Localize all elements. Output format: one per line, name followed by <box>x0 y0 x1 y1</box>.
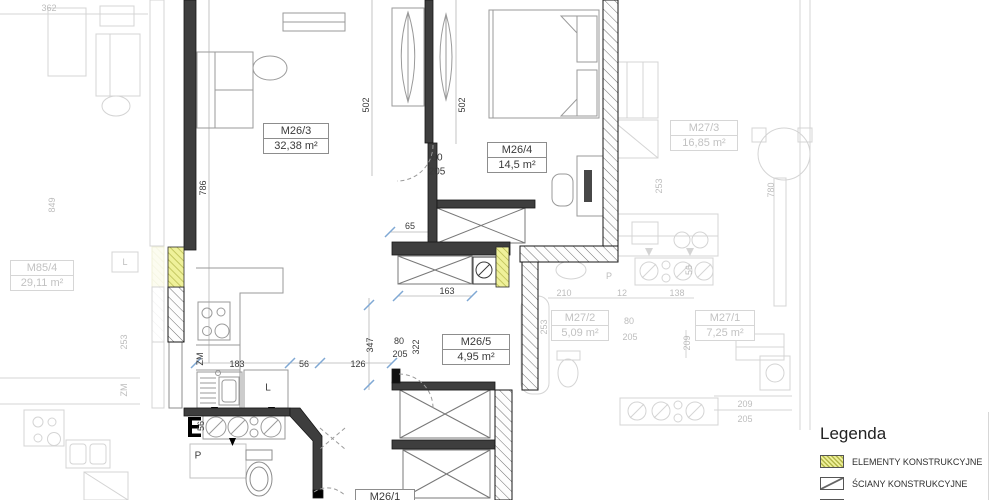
dim-56-right: 56 <box>684 265 694 275</box>
room-name: M26/4 <box>488 143 546 158</box>
dim-door-80: 80 <box>431 153 442 164</box>
wardrobe-right-unit <box>612 62 658 118</box>
legend-item-structural-elements: ELEMENTY KONSTRUKCYJNE <box>820 455 995 468</box>
legend-item-label: ELEMENTY KONSTRUKCYJNE <box>852 457 982 467</box>
dim-205-bottom: 205 <box>737 414 752 424</box>
faded-partition-wall <box>152 342 164 408</box>
table-left-unit <box>102 96 130 116</box>
legend-item-structural-walls: ŚCIANY KONSTRUKCYJNE <box>820 477 995 490</box>
coffee-table <box>253 56 287 80</box>
room-area: 29,11 m² <box>11 276 73 290</box>
kitchen-sink <box>197 371 242 409</box>
cooktop <box>198 302 230 340</box>
dim-362: 362 <box>41 3 56 13</box>
room-name: M26/5 <box>443 335 509 350</box>
armchair-left-unit <box>100 6 134 26</box>
counter-right-unit <box>618 214 718 256</box>
yellow-element-left <box>168 247 184 287</box>
dim-12: 12 <box>617 288 627 298</box>
appliance-washer-p: P <box>195 451 202 462</box>
room-label-m26-1: M26/1 <box>355 489 415 500</box>
room-label-m26-3: M26/3 32,38 m² <box>263 123 329 154</box>
room-label-m27-2: M27/2 5,09 m² <box>551 310 609 341</box>
legend-title: Legenda <box>820 424 995 444</box>
appliance-zm: ZM <box>195 353 205 366</box>
dim-126: 126 <box>350 359 365 369</box>
pillow <box>577 16 597 62</box>
dim-183: 183 <box>229 359 244 369</box>
faded-hatch-wall <box>152 287 164 342</box>
desk-chair <box>552 174 573 206</box>
dim-210: 210 <box>556 288 571 298</box>
room-area: 7,25 m² <box>696 326 754 340</box>
legend-item-label: ŚCIANY KONSTRUKCYJNE <box>852 479 967 489</box>
sink-right-unit <box>674 232 690 248</box>
dim-65: 65 <box>405 221 415 231</box>
door-jamb <box>392 369 400 383</box>
wall-central <box>425 0 433 143</box>
room-name: M26/1 <box>356 490 414 500</box>
floor-plan: M26/3 32,38 m² M26/4 14,5 m² M26/5 4,95 … <box>0 0 1000 500</box>
ventilation-fan-symbol <box>473 257 496 284</box>
room-area: 4,95 m² <box>443 350 509 364</box>
dim-347: 347 <box>365 337 375 352</box>
yellow-element-center <box>496 247 509 287</box>
legend: Legenda ELEMENTY KONSTRUKCYJNE ŚCIANY KO… <box>820 424 995 500</box>
dim-163: 163 <box>439 286 454 296</box>
diagonal-hatch-swatch <box>820 477 844 490</box>
appliance-l-left: L <box>122 257 127 267</box>
dim-253-topright: 253 <box>654 178 664 193</box>
dim-door2-205: 205 <box>392 349 407 359</box>
dim-209: 209 <box>682 335 692 350</box>
dim-786: 786 <box>198 180 208 195</box>
room-name: M26/3 <box>264 124 328 139</box>
dim-780: 780 <box>766 182 776 197</box>
cooktop-left-unit <box>24 410 64 446</box>
dim-door3-205: 205 <box>622 332 637 342</box>
vent-arrow <box>645 248 653 256</box>
dim-door3-80: 80 <box>624 316 634 326</box>
room-label-m26-4: M26/4 14,5 m² <box>487 142 547 173</box>
dim-253-m27-2: 253 <box>539 319 549 334</box>
appliance-zm-left: ZM <box>119 384 129 397</box>
room-area: 5,09 m² <box>552 326 608 340</box>
dim-502-right: 502 <box>457 97 467 112</box>
room-name: M27/3 <box>671 121 737 136</box>
riser-group-main <box>203 415 285 439</box>
faded-yellow-element <box>152 247 164 287</box>
room-label-m85-4: M85/4 29,11 m² <box>10 260 74 291</box>
room-label-m27-1: M27/1 7,25 m² <box>695 310 755 341</box>
pillow <box>577 70 597 116</box>
vent-arrow <box>686 248 694 256</box>
room-area: 32,38 m² <box>264 139 328 153</box>
dim-209-bottom: 209 <box>737 399 752 409</box>
dim-56-shaft: 56 <box>196 421 206 431</box>
dim-door-205: 205 <box>429 167 446 178</box>
toilet-right-unit <box>558 359 578 387</box>
room-name: M85/4 <box>11 261 73 276</box>
legend-border-line <box>988 412 989 500</box>
dim-56: 56 <box>299 359 309 369</box>
room-name: M27/2 <box>552 311 608 326</box>
partition-wall <box>169 342 182 408</box>
washbasin-right-unit <box>556 261 586 279</box>
wall-left <box>184 0 196 250</box>
washer-m27-1 <box>760 356 790 390</box>
room-name: M27/1 <box>696 311 754 326</box>
room-area: 16,85 m² <box>671 136 737 150</box>
bed <box>489 10 599 118</box>
room-label-m27-3: M27/3 16,85 m² <box>670 120 738 151</box>
faded-furniture-top-left <box>48 8 86 76</box>
appliance-fridge-l: L <box>265 383 271 394</box>
dim-322: 322 <box>411 339 421 354</box>
appliance-p-right: P <box>606 271 612 281</box>
monitor <box>584 170 592 202</box>
yellow-hatch-swatch <box>820 455 844 468</box>
dim-502-left: 502 <box>361 97 371 112</box>
dim-138: 138 <box>669 288 684 298</box>
sofa-left-unit <box>96 34 140 96</box>
dim-door2-80: 80 <box>394 336 404 346</box>
dim-253-left: 253 <box>119 334 129 349</box>
room-area: 14,5 m² <box>488 158 546 172</box>
toilet <box>246 450 272 496</box>
chair-right-unit <box>752 128 766 142</box>
faded-party-wall-left <box>150 0 164 246</box>
dim-849: 849 <box>47 197 57 212</box>
room-label-m26-5: M26/5 4,95 m² <box>442 334 510 365</box>
